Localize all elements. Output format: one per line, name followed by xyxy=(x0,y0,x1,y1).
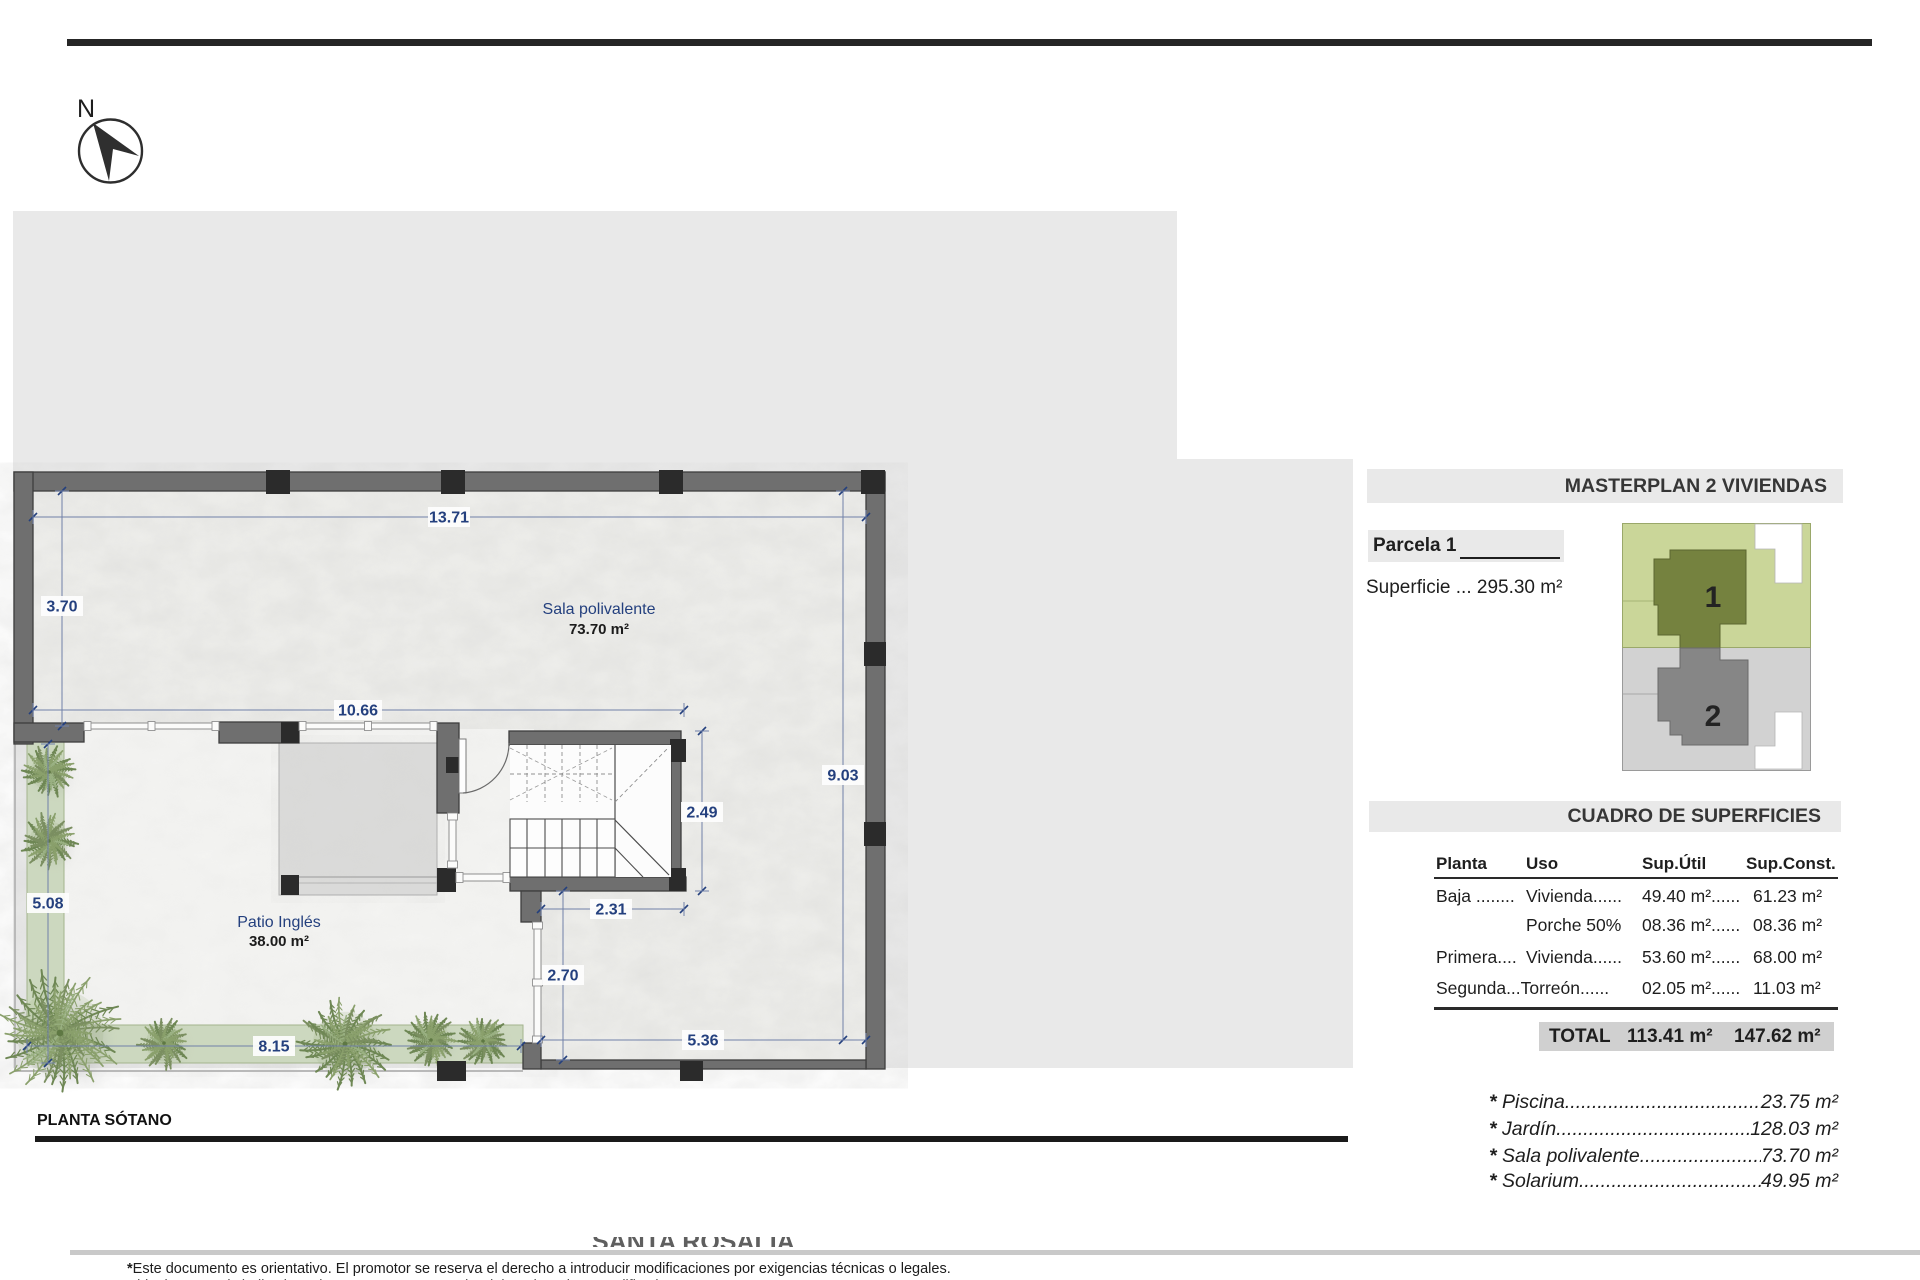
svg-text:73.70 m²: 73.70 m² xyxy=(569,621,629,638)
svg-text:38.00 m²: 38.00 m² xyxy=(249,933,309,950)
svg-text:2.49: 2.49 xyxy=(686,805,717,822)
svg-text:2: 2 xyxy=(1705,700,1722,733)
svg-text:Sala polivalente: Sala polivalente xyxy=(543,601,656,618)
svg-text:Patio Inglés: Patio Inglés xyxy=(237,914,321,931)
svg-text:13.71: 13.71 xyxy=(429,510,469,527)
svg-text:10.66: 10.66 xyxy=(338,703,378,720)
svg-text:2.70: 2.70 xyxy=(547,968,578,985)
svg-text:2.31: 2.31 xyxy=(595,902,626,919)
svg-text:3.70: 3.70 xyxy=(46,599,77,616)
svg-text:5.36: 5.36 xyxy=(687,1033,718,1050)
svg-text:9.03: 9.03 xyxy=(827,768,858,785)
svg-text:8.15: 8.15 xyxy=(258,1039,289,1056)
svg-text:5.08: 5.08 xyxy=(32,896,63,913)
svg-text:1: 1 xyxy=(1705,581,1722,614)
